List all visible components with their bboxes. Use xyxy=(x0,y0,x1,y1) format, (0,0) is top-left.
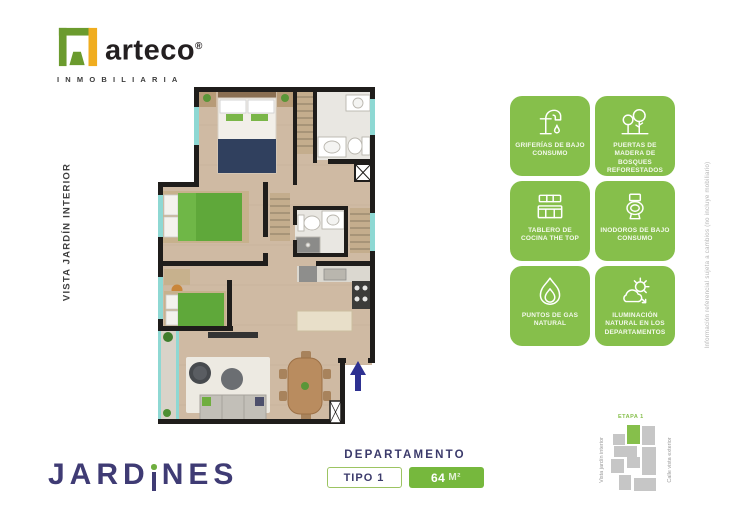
vista-jardin-label: VISTA JARDÍN INTERIOR xyxy=(62,163,73,301)
balcony-window xyxy=(158,329,161,420)
site-plan: ETAPA 1 Vista jardín interior Calle vist… xyxy=(594,410,684,510)
entry-door-panel xyxy=(330,401,341,423)
closet-hall xyxy=(350,208,370,253)
toilet-icon xyxy=(618,190,652,224)
wordmark-part-before: JARD xyxy=(48,458,150,492)
badge-label: INODOROS DE BAJO CONSUMO xyxy=(595,227,675,244)
stage-label: ETAPA 1 xyxy=(618,414,644,420)
badge-label: ILUMINACIÓN NATURAL EN LOS DEPARTAMENTOS xyxy=(595,312,675,337)
highlighted-block xyxy=(627,425,640,444)
badge-puertas-madera: PUERTAS DE MADERA DE BOSQUES REFORESTADO… xyxy=(595,96,675,176)
unit-info: DEPARTAMENTO TIPO 1 64 M² xyxy=(325,449,485,488)
green-dot xyxy=(151,464,157,470)
unit-area-chip: 64 M² xyxy=(409,467,484,488)
brand-name: arteco® xyxy=(105,26,203,72)
site-plan-blocks xyxy=(608,423,660,493)
sunlight-icon xyxy=(618,275,652,309)
badge-label: TABLERO DE COCINA THE TOP xyxy=(510,227,590,244)
badge-griferias: GRIFERÍAS DE BAJO CONSUMO xyxy=(510,96,590,176)
balcony-plant xyxy=(163,409,171,417)
wordmark-part-after: NES xyxy=(162,458,239,492)
bed-blanket xyxy=(218,139,276,173)
flame-icon xyxy=(533,275,567,309)
wordmark-letter-i xyxy=(151,462,158,492)
registered-mark: ® xyxy=(195,41,203,52)
siteplan-right-label: Calle vista exterior xyxy=(667,437,673,482)
bed-headboard xyxy=(218,91,276,98)
badge-label: PUERTAS DE MADERA DE BOSQUES REFORESTADO… xyxy=(595,142,675,176)
area-value: 64 xyxy=(431,471,445,485)
brochure-page: arteco® INMOBILIARIA VISTA JARDÍN INTERI… xyxy=(0,0,730,520)
closet-master xyxy=(297,92,313,154)
balcony-floor xyxy=(161,329,177,420)
duct-box xyxy=(355,164,371,181)
tv-console xyxy=(208,332,258,338)
brand-subtitle: INMOBILIARIA xyxy=(57,75,217,84)
bedroom-2 xyxy=(161,191,290,243)
badge-iluminacion: ILUMINACIÓN NATURAL EN LOS DEPARTAMENTOS xyxy=(595,266,675,346)
badge-inodoros: INODOROS DE BAJO CONSUMO xyxy=(595,181,675,261)
kitchen-counter-icon xyxy=(533,190,567,224)
pouf xyxy=(221,368,243,390)
unit-type-chip: TIPO 1 xyxy=(327,467,402,488)
balcony-glass-door xyxy=(176,331,179,419)
faucet-icon xyxy=(533,105,567,139)
badge-label: PUNTOS DE GAS NATURAL xyxy=(510,312,590,329)
feature-badges: GRIFERÍAS DE BAJO CONSUMO PUERTAS DE MAD… xyxy=(510,96,675,346)
arteco-logo: arteco® INMOBILIARIA xyxy=(57,26,217,84)
badge-tablero-cocina: TABLERO DE COCINA THE TOP xyxy=(510,181,590,261)
stove xyxy=(352,281,370,309)
jardines-wordmark: JARDNES xyxy=(48,460,238,492)
arteco-door-icon xyxy=(57,26,99,68)
floor-plan xyxy=(156,85,378,429)
badge-label: GRIFERÍAS DE BAJO CONSUMO xyxy=(510,142,590,159)
badge-gas-natural: PUNTOS DE GAS NATURAL xyxy=(510,266,590,346)
unit-heading: DEPARTAMENTO xyxy=(325,449,485,461)
disclaimer-text: Información referencial sujeta a cambios… xyxy=(705,162,711,349)
kitchen-island xyxy=(297,311,352,331)
siteplan-left-label: Vista jardín interior xyxy=(599,437,605,483)
balcony-plant xyxy=(163,332,173,342)
trees-icon xyxy=(618,105,652,139)
area-unit: M² xyxy=(448,472,461,483)
